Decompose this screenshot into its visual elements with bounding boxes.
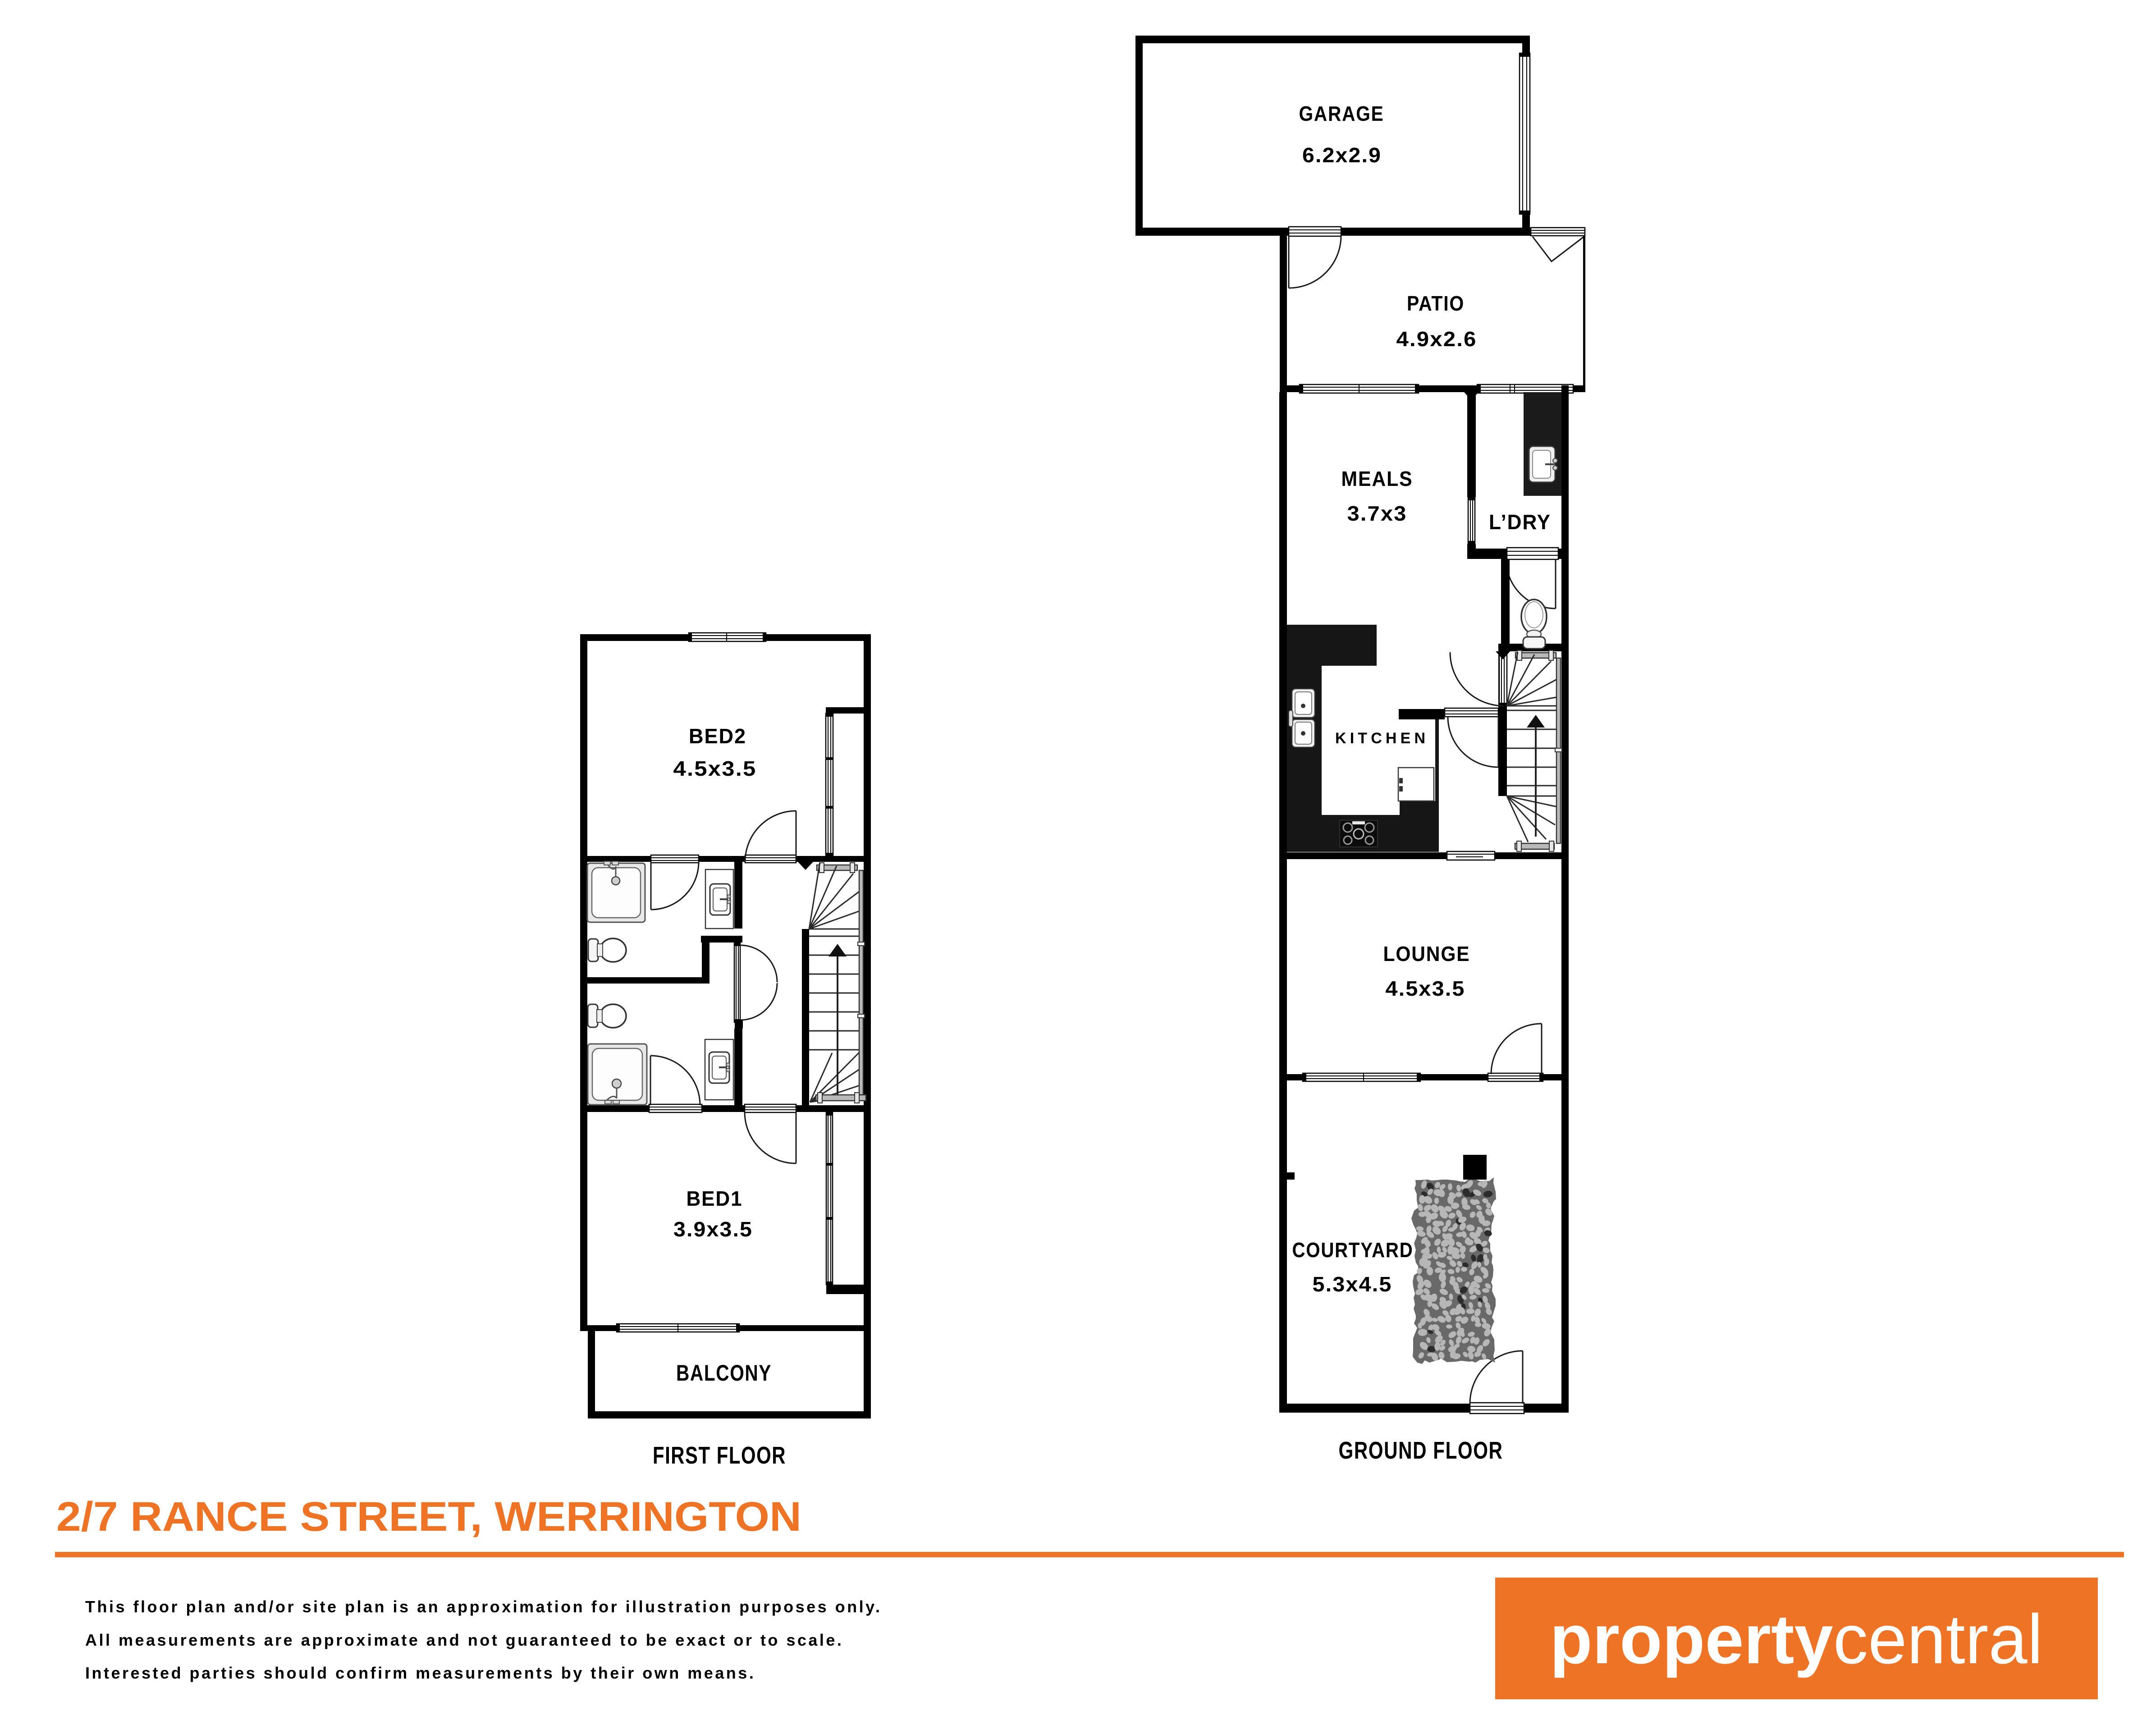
svg-text:GARAGE: GARAGE (1299, 102, 1384, 125)
svg-text:4.5x3.5: 4.5x3.5 (1386, 977, 1465, 1000)
svg-text:3.7x3: 3.7x3 (1347, 502, 1407, 525)
svg-text:PATIO: PATIO (1407, 292, 1465, 315)
svg-text:This floor plan and/or site pl: This floor plan and/or site plan is an a… (85, 1597, 882, 1616)
svg-text:5.3x4.5: 5.3x4.5 (1313, 1272, 1392, 1296)
svg-text:2/7 RANCE STREET, WERRINGTON: 2/7 RANCE STREET, WERRINGTON (56, 1494, 801, 1540)
svg-text:BED1: BED1 (687, 1187, 743, 1210)
svg-text:6.2x2.9: 6.2x2.9 (1302, 143, 1382, 167)
svg-text:All measurements are approxima: All measurements are approximate and not… (85, 1631, 843, 1649)
svg-text:BED2: BED2 (689, 724, 746, 748)
svg-text:L’DRY: L’DRY (1489, 510, 1551, 534)
svg-text:COURTYARD: COURTYARD (1292, 1238, 1414, 1262)
svg-text:4.5x3.5: 4.5x3.5 (673, 757, 757, 780)
svg-text:4.9x2.6: 4.9x2.6 (1396, 327, 1477, 351)
svg-text:FIRST FLOOR: FIRST FLOOR (653, 1442, 786, 1469)
svg-text:LOUNGE: LOUNGE (1383, 942, 1470, 965)
svg-text:GROUND FLOOR: GROUND FLOOR (1339, 1437, 1503, 1464)
svg-text:BALCONY: BALCONY (676, 1360, 772, 1386)
svg-text:MEALS: MEALS (1341, 467, 1413, 490)
svg-text:3.9x3.5: 3.9x3.5 (673, 1217, 753, 1241)
svg-text:propertycentral: propertycentral (1550, 1600, 2043, 1678)
svg-text:Interested parties should conf: Interested parties should confirm measur… (85, 1664, 755, 1682)
